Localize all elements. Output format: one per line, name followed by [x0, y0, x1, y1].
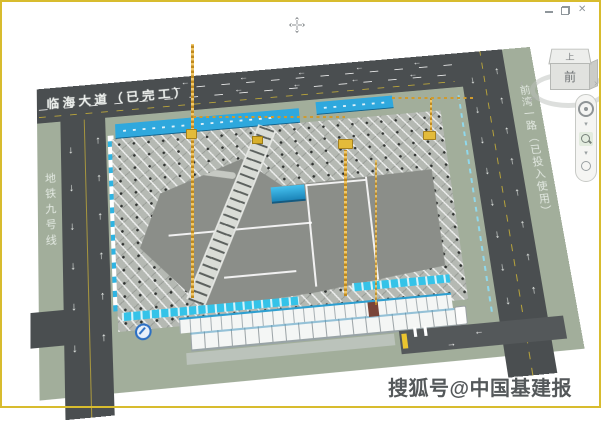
tower-crane-jib [392, 97, 476, 99]
pan-cursor-icon [288, 16, 306, 34]
tower-crane-cab [338, 139, 353, 149]
tower-crane-cab [423, 131, 436, 140]
restore-icon[interactable] [561, 6, 570, 15]
entrance-arrow-right: → [446, 337, 457, 348]
label-metro-line-9: 地铁九号线 [41, 172, 58, 251]
gate-post [413, 327, 417, 337]
road-label-linhai: 临海大道（已完工） [46, 83, 190, 112]
minimize-icon[interactable] [545, 11, 553, 13]
zoom-icon[interactable] [579, 132, 593, 146]
floor-marking [305, 184, 317, 287]
watermark: 搜狐号@中国基建报 [388, 372, 572, 401]
pit-sign-blue [271, 184, 306, 203]
floor-marking [305, 179, 366, 186]
traffic-sign-round [135, 323, 152, 341]
viewcube-rotate-left-icon[interactable]: ‹ [520, 78, 523, 89]
side-street [30, 310, 66, 349]
site-banner-northeast [315, 96, 393, 115]
floor-marking [365, 175, 380, 281]
viewcube-front-face[interactable]: 前 [550, 63, 590, 90]
tower-crane-mast [344, 150, 347, 296]
view-window-controls: ✕ [545, 5, 586, 15]
gate-barrier [401, 333, 408, 348]
tower-crane-mast [375, 160, 377, 305]
viewcube-roll-icon[interactable]: ↶ [528, 96, 536, 107]
steering-wheel-icon[interactable] [578, 101, 594, 117]
pan-tool-icon[interactable] [581, 161, 591, 171]
chevron-down-icon[interactable]: ▾ [584, 150, 588, 157]
site-plan-3d[interactable]: ←←←←← ←←←← →→ 临海大道（已完工） 地铁九号线 ↓ ↓ ↓ ↓ ↓ … [37, 47, 585, 401]
guard-house [367, 302, 379, 317]
entrance-arrow-left: ← [473, 325, 484, 336]
tower-crane-cab [186, 129, 197, 139]
viewcube-rotate-right-icon[interactable]: › [594, 78, 597, 89]
tower-crane-jib [193, 116, 345, 118]
floor-marking [224, 270, 297, 279]
navigation-bar: ▾ ▾ [575, 94, 597, 182]
pit-floor [120, 118, 459, 323]
excavator [252, 136, 263, 144]
tower-crane-mast [191, 44, 194, 298]
close-icon[interactable]: ✕ [578, 5, 586, 15]
bim-viewport[interactable]: ←←←←← ←←←← →→ 临海大道（已完工） 地铁九号线 ↓ ↓ ↓ ↓ ↓ … [0, 0, 601, 408]
truck [454, 305, 468, 325]
chevron-down-icon[interactable]: ▾ [584, 121, 588, 128]
traffic-sign-bar [139, 327, 146, 335]
gate-post [423, 326, 427, 336]
